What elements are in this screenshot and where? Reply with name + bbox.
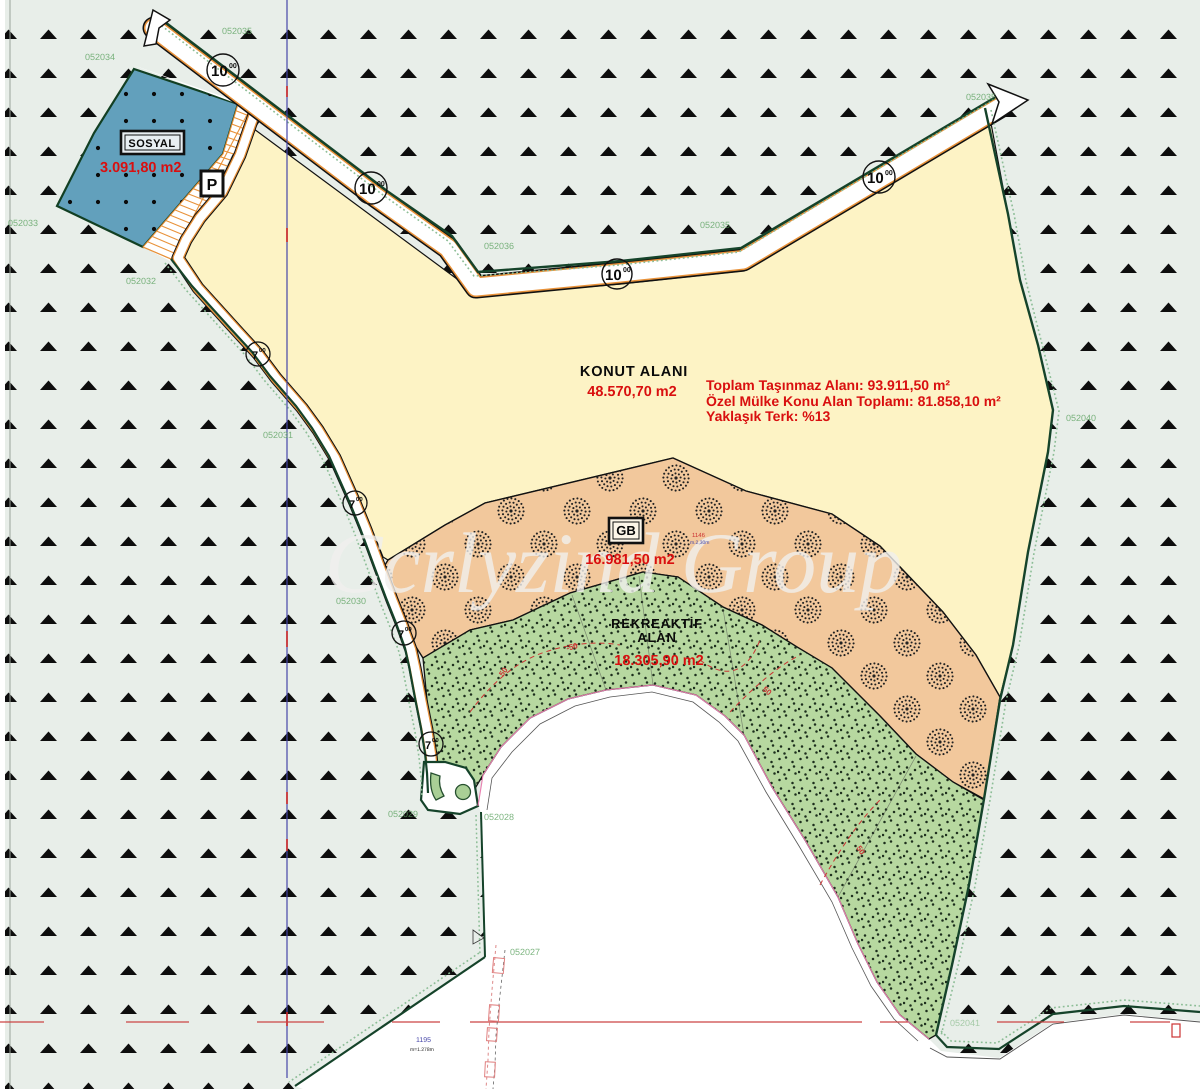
- svg-text:10: 10: [211, 63, 228, 80]
- svg-text:052035: 052035: [222, 26, 252, 36]
- svg-text:1146: 1146: [692, 532, 706, 539]
- svg-text:Özel Mülke Konu Alan Toplamı:: Özel Mülke Konu Alan Toplamı: 81.858,10 …: [706, 393, 1001, 409]
- svg-text:052031: 052031: [263, 430, 293, 440]
- svg-text:GB: GB: [616, 523, 636, 538]
- svg-text:7: 7: [425, 740, 431, 752]
- svg-text:7: 7: [349, 499, 355, 511]
- svg-text:m.2,30m: m.2,30m: [690, 540, 709, 546]
- svg-text:3.091,80 m2: 3.091,80 m2: [100, 160, 181, 176]
- svg-text:7: 7: [398, 629, 404, 641]
- svg-text:00: 00: [405, 626, 412, 633]
- svg-text:00: 00: [356, 496, 363, 503]
- svg-text:m=1.278m: m=1.278m: [410, 1047, 434, 1053]
- svg-text:10: 10: [605, 267, 622, 284]
- svg-text:052041: 052041: [950, 1018, 980, 1028]
- svg-text:00: 00: [432, 737, 439, 744]
- svg-text:00: 00: [377, 181, 385, 188]
- svg-text:KONUT ALANI: KONUT ALANI: [580, 364, 688, 380]
- svg-text:P: P: [207, 177, 218, 194]
- svg-text:10: 10: [867, 170, 884, 187]
- svg-text:052029: 052029: [388, 809, 418, 819]
- svg-text:7: 7: [252, 350, 258, 362]
- svg-text:ALAN: ALAN: [637, 630, 676, 645]
- svg-text:052040: 052040: [1066, 413, 1096, 423]
- svg-text:052036: 052036: [484, 241, 514, 251]
- svg-text:00: 00: [885, 170, 893, 177]
- svg-text:REKREAKTİF: REKREAKTİF: [611, 616, 703, 631]
- svg-text:10: 10: [359, 181, 376, 198]
- svg-text:16.981,50 m2: 16.981,50 m2: [585, 552, 675, 568]
- svg-text:48.570,70 m2: 48.570,70 m2: [587, 384, 677, 400]
- svg-text:00: 00: [229, 63, 237, 70]
- svg-text:052032: 052032: [126, 276, 156, 286]
- svg-text:052028: 052028: [484, 812, 514, 822]
- svg-text:052030: 052030: [336, 596, 366, 606]
- svg-text:SOSYAL: SOSYAL: [128, 138, 175, 150]
- svg-text:18.305,90 m2: 18.305,90 m2: [614, 653, 704, 669]
- svg-text:Yaklaşık Terk: %13: Yaklaşık Terk: %13: [706, 408, 830, 424]
- svg-text:Toplam Taşınmaz Alanı: 93.911,: Toplam Taşınmaz Alanı: 93.911,50 m²: [706, 377, 950, 393]
- svg-text:052035: 052035: [966, 92, 996, 102]
- svg-text:052027: 052027: [510, 947, 540, 957]
- svg-text:052034: 052034: [85, 52, 115, 62]
- svg-text:052033: 052033: [8, 218, 38, 228]
- svg-text:00: 00: [259, 347, 266, 354]
- svg-text:00: 00: [623, 267, 631, 274]
- svg-text:052035: 052035: [700, 220, 730, 230]
- svg-text:1195: 1195: [416, 1037, 431, 1044]
